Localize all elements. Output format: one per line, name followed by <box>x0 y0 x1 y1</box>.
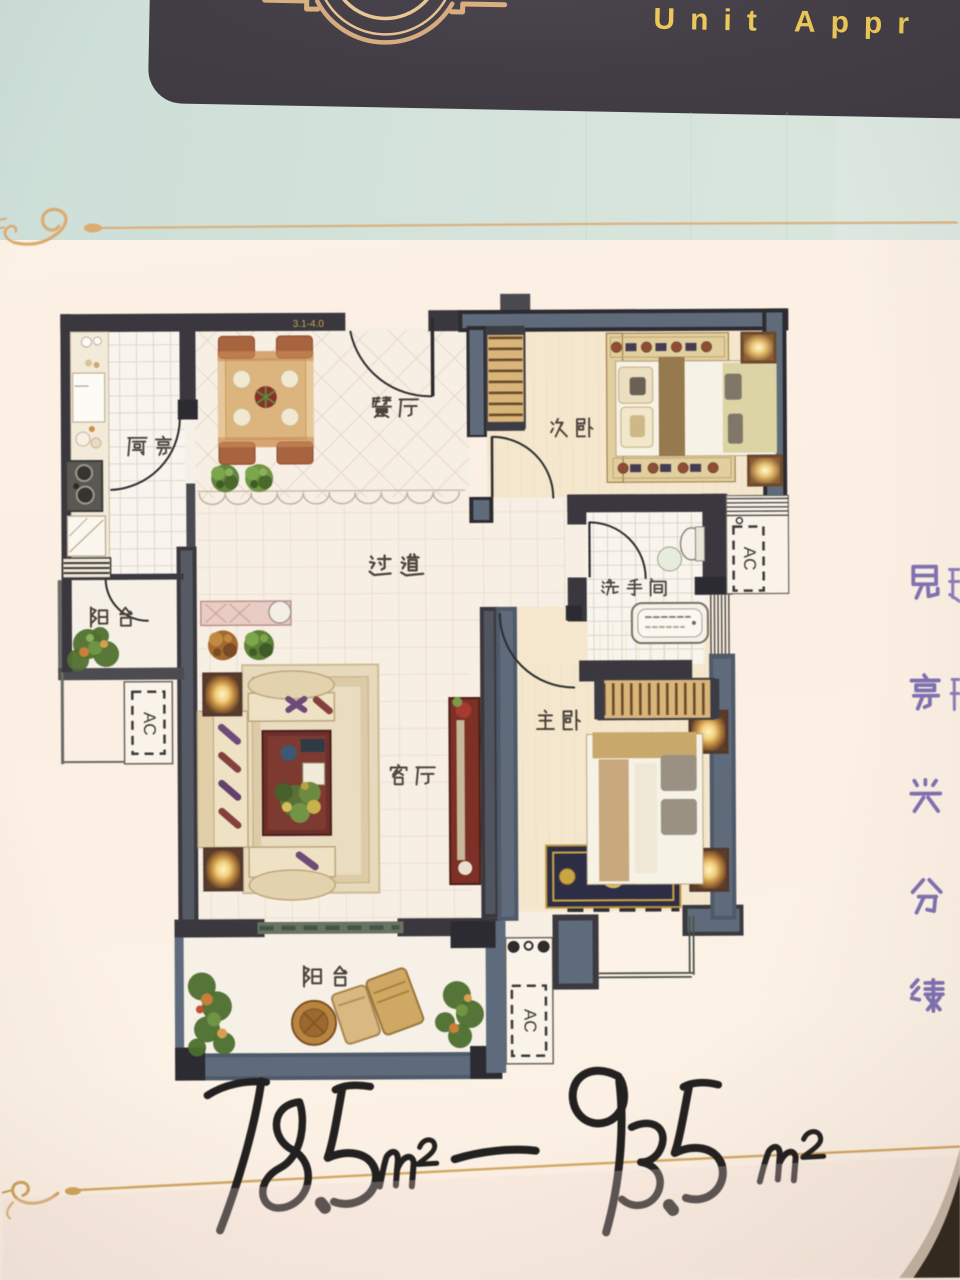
svg-text:3.1-4.0: 3.1-4.0 <box>293 319 325 330</box>
svg-text:AC: AC <box>520 1009 539 1033</box>
svg-text:AC: AC <box>740 547 759 571</box>
svg-text:AC: AC <box>140 712 159 736</box>
